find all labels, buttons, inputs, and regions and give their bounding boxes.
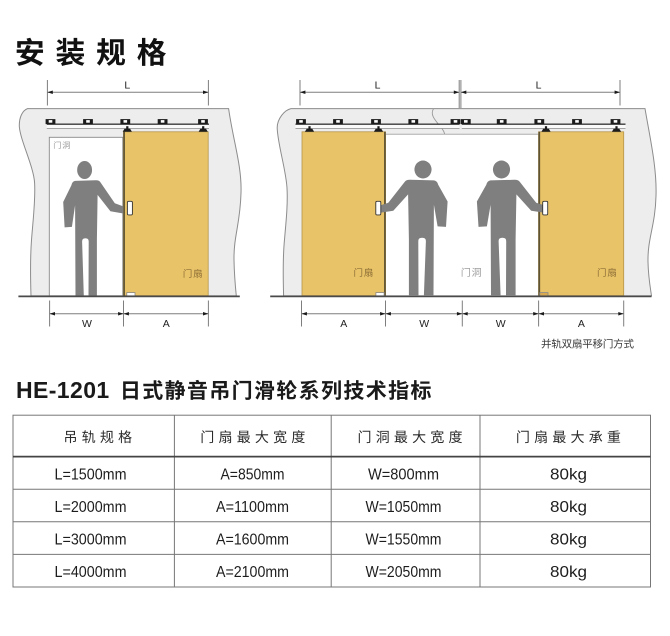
- svg-text:A=850mm: A=850mm: [221, 466, 285, 483]
- svg-text:80kg: 80kg: [550, 564, 587, 581]
- svg-text:W: W: [82, 318, 92, 330]
- svg-text:L: L: [124, 80, 130, 92]
- svg-text:80kg: 80kg: [550, 532, 587, 549]
- svg-text:A=2100mm: A=2100mm: [216, 564, 289, 581]
- svg-text:HE-1201: HE-1201: [16, 377, 110, 403]
- svg-text:L=2000mm: L=2000mm: [55, 499, 127, 516]
- svg-text:80kg: 80kg: [550, 499, 587, 516]
- svg-text:W: W: [419, 318, 429, 330]
- svg-text:W=1050mm: W=1050mm: [366, 499, 442, 516]
- svg-text:A: A: [578, 318, 585, 330]
- svg-text:W: W: [496, 318, 506, 330]
- svg-text:A: A: [163, 318, 170, 330]
- svg-text:A=1100mm: A=1100mm: [216, 499, 289, 516]
- svg-text:L=1500mm: L=1500mm: [55, 466, 127, 483]
- svg-text:W=1550mm: W=1550mm: [366, 532, 442, 549]
- svg-text:W=800mm: W=800mm: [368, 466, 439, 483]
- svg-text:80kg: 80kg: [550, 466, 587, 483]
- svg-text:L: L: [536, 80, 542, 92]
- svg-text:L=4000mm: L=4000mm: [55, 564, 127, 581]
- svg-text:L=3000mm: L=3000mm: [55, 532, 127, 549]
- svg-text:L: L: [375, 80, 381, 92]
- svg-text:A=1600mm: A=1600mm: [216, 532, 289, 549]
- svg-text:W=2050mm: W=2050mm: [366, 564, 442, 581]
- svg-text:A: A: [340, 318, 347, 330]
